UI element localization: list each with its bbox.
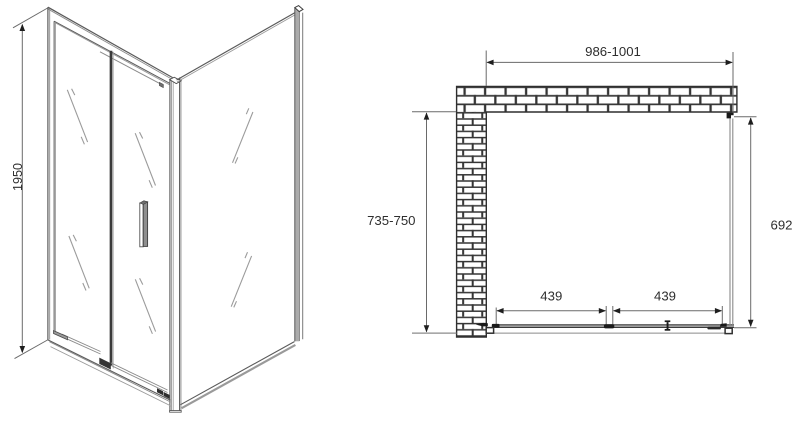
svg-text:439: 439 [654, 288, 676, 303]
svg-text:735-750: 735-750 [367, 213, 415, 228]
svg-text:1950: 1950 [11, 163, 25, 191]
svg-text:692: 692 [770, 218, 792, 233]
svg-text:986-1001: 986-1001 [585, 44, 641, 59]
svg-text:439: 439 [540, 288, 562, 303]
